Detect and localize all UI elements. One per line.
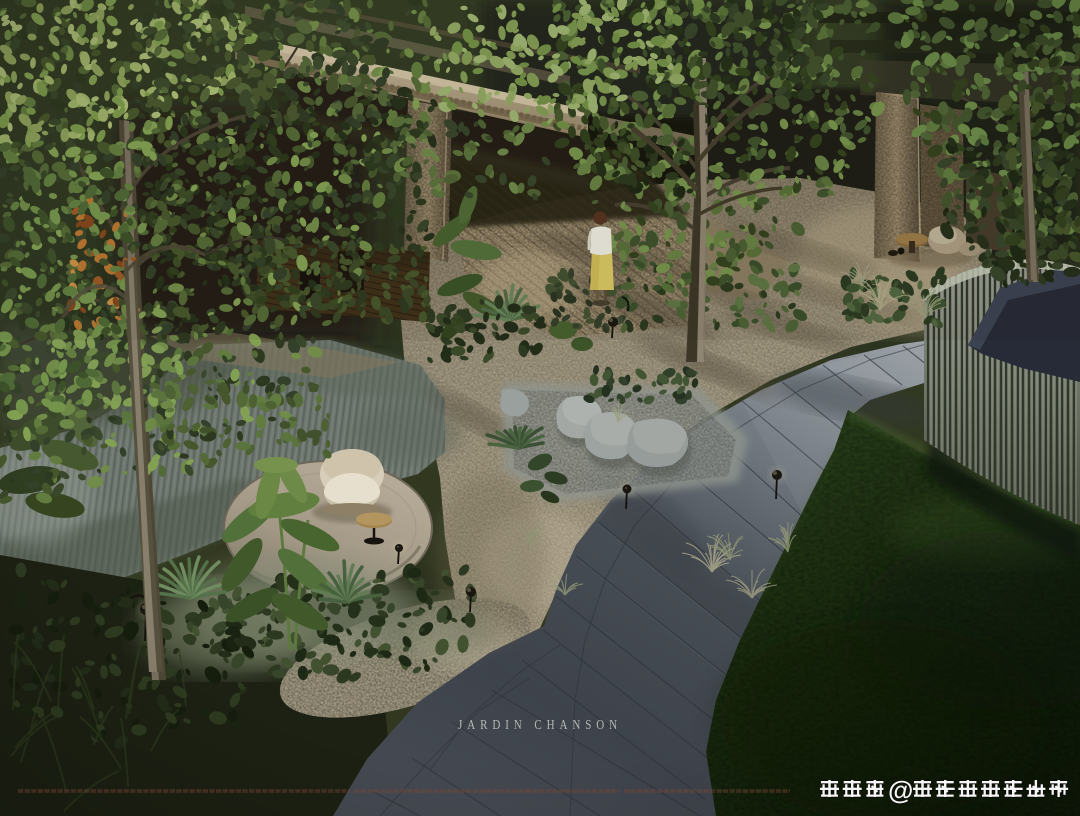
svg-text:JARDIN CHANSON: JARDIN CHANSON: [458, 717, 622, 732]
svg-text:@: @: [888, 775, 913, 805]
